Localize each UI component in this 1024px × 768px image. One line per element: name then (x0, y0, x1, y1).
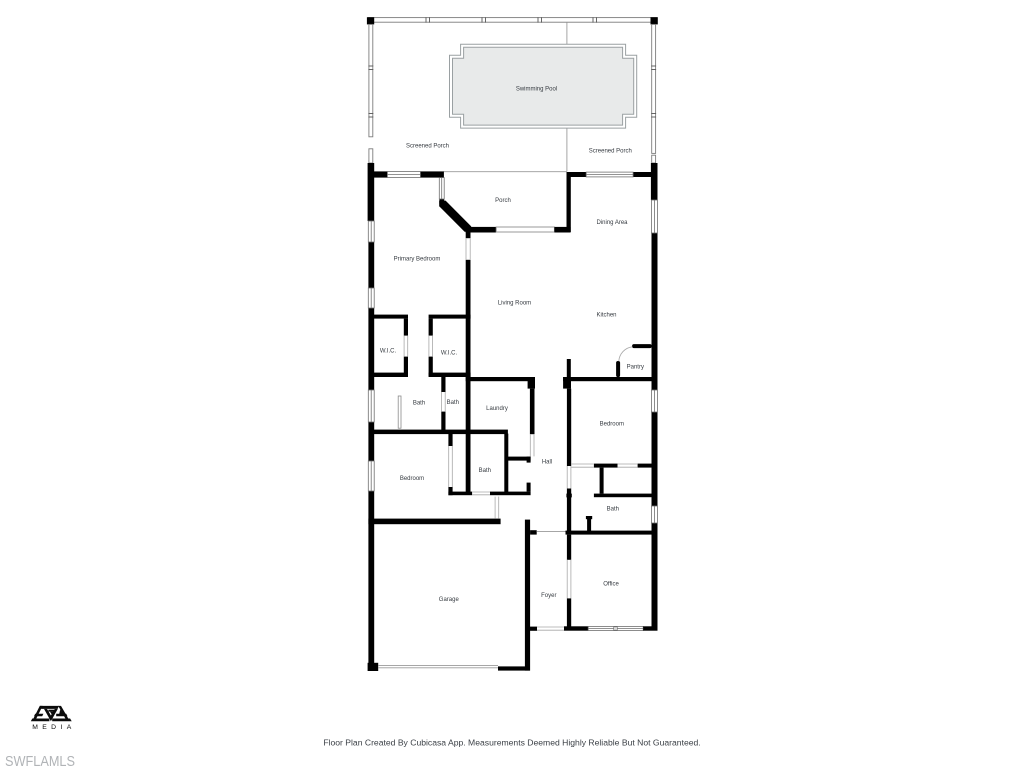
svg-text:W.I.C.: W.I.C. (441, 351, 458, 357)
svg-text:Bath: Bath (607, 507, 619, 513)
svg-text:Garage: Garage (439, 597, 460, 603)
svg-text:Bath: Bath (413, 401, 425, 407)
svg-text:Pantry: Pantry (627, 365, 644, 371)
svg-text:Hall: Hall (542, 460, 552, 466)
svg-text:Foyer: Foyer (541, 593, 556, 599)
svg-text:W.I.C.: W.I.C. (380, 349, 397, 355)
svg-text:Primary Bedroom: Primary Bedroom (394, 256, 441, 262)
svg-text:Bath: Bath (479, 468, 491, 474)
svg-text:Screened Porch: Screened Porch (406, 143, 449, 149)
svg-text:Bath: Bath (447, 400, 459, 406)
svg-text:MEDIA: MEDIA (32, 724, 76, 731)
svg-text:Floor Plan Created By Cubicasa: Floor Plan Created By Cubicasa App. Meas… (323, 737, 700, 747)
svg-text:Dining Area: Dining Area (596, 220, 628, 226)
svg-text:Laundry: Laundry (486, 406, 508, 412)
svg-text:Bedroom: Bedroom (600, 422, 624, 428)
svg-text:Kitchen: Kitchen (596, 313, 616, 319)
svg-text:Screened Porch: Screened Porch (589, 148, 632, 154)
svg-text:Living Room: Living Room (498, 300, 531, 306)
svg-text:SWFLAMLS: SWFLAMLS (5, 753, 75, 768)
svg-text:Swimming Pool: Swimming Pool (516, 86, 557, 92)
svg-text:Porch: Porch (495, 198, 511, 204)
svg-text:Office: Office (603, 582, 619, 588)
svg-text:Bedroom: Bedroom (400, 476, 424, 482)
